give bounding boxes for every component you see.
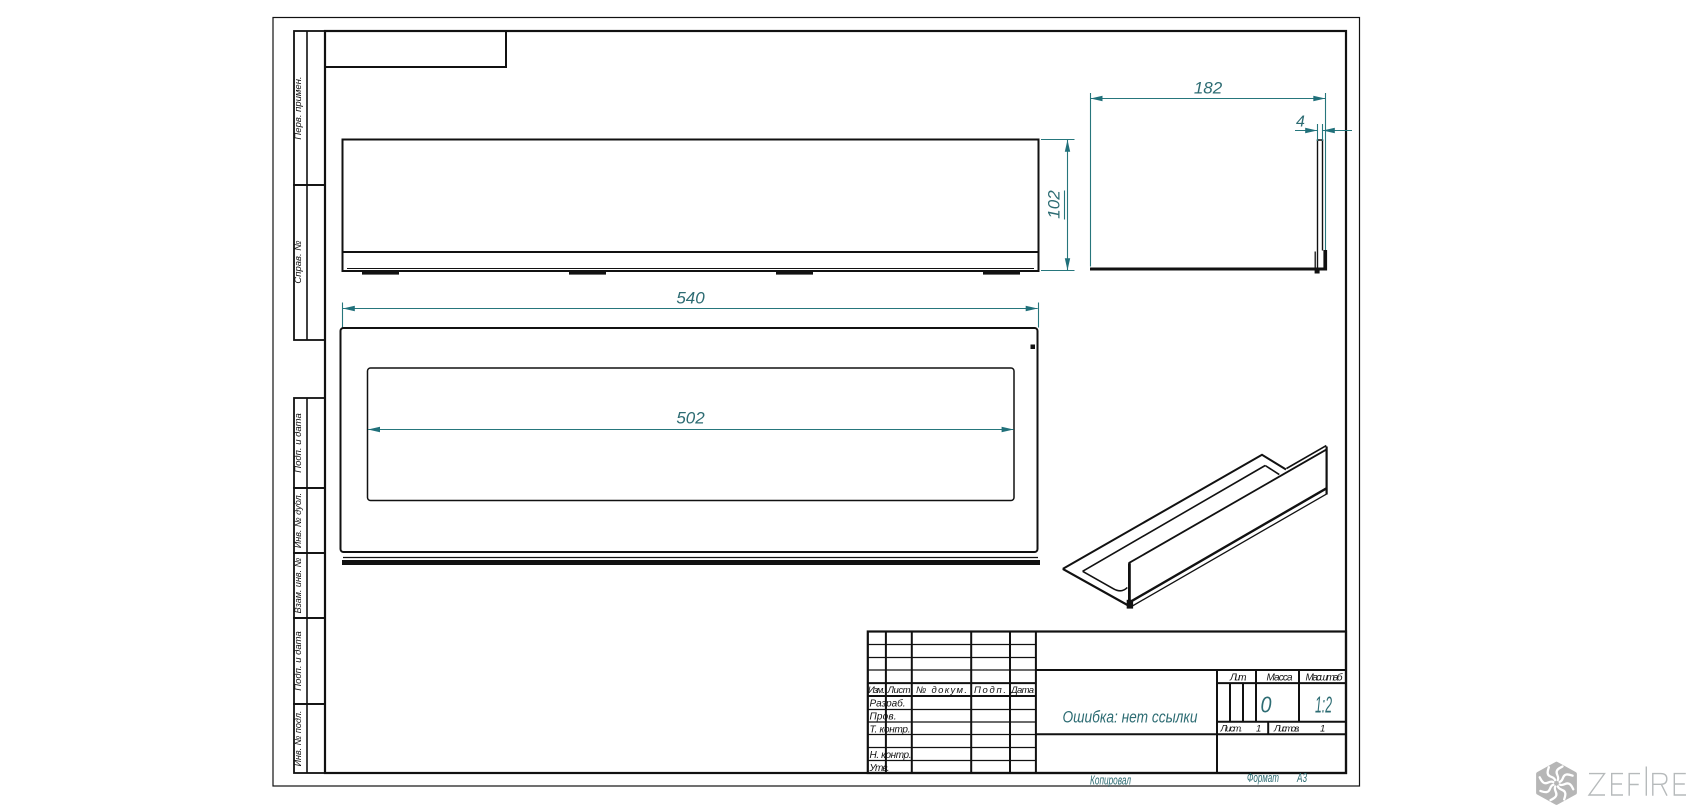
- svg-text:Листов.: Листов.: [1273, 724, 1300, 735]
- svg-text:Инв. № дубл.: Инв. № дубл.: [293, 493, 303, 548]
- svg-text:Масса: Масса: [1267, 672, 1293, 683]
- svg-text:Дата: Дата: [1010, 685, 1034, 696]
- svg-text:Лит.: Лит.: [1229, 672, 1247, 683]
- svg-text:Пров.: Пров.: [870, 711, 897, 722]
- svg-text:1: 1: [1256, 724, 1261, 735]
- svg-text:Справ. №: Справ. №: [293, 240, 304, 283]
- svg-text:Т. контр.: Т. контр.: [870, 724, 911, 735]
- svg-text:102: 102: [1045, 190, 1064, 219]
- svg-text:Перв. примен.: Перв. примен.: [293, 76, 304, 139]
- svg-text:А3: А3: [1296, 771, 1307, 785]
- svg-text:Лист: Лист: [887, 685, 911, 696]
- svg-text:Масштаб: Масштаб: [1306, 671, 1343, 683]
- svg-text:Н. контр.: Н. контр.: [870, 750, 912, 761]
- svg-text:Изм.: Изм.: [868, 685, 885, 696]
- svg-text:1:2: 1:2: [1315, 692, 1332, 718]
- svg-text:Инв. № подл.: Инв. № подл.: [293, 711, 303, 767]
- svg-text:Лист.: Лист.: [1220, 724, 1243, 735]
- svg-text:182: 182: [1194, 79, 1223, 98]
- svg-text:Копировал: Копировал: [1090, 773, 1131, 788]
- svg-text:Подп. и дата: Подп. и дата: [293, 413, 304, 472]
- svg-text:0: 0: [1261, 692, 1272, 718]
- svg-text:Утв.: Утв.: [869, 763, 890, 774]
- svg-text:502: 502: [676, 409, 705, 428]
- svg-text:Формат: Формат: [1247, 771, 1279, 785]
- svg-text:Ошибка: нет ссылки: Ошибка: нет ссылки: [1063, 708, 1198, 727]
- svg-text:Подп.: Подп.: [974, 685, 1006, 696]
- svg-text:Разраб.: Разраб.: [870, 698, 906, 710]
- svg-text:Взам. инв. №: Взам. инв. №: [293, 557, 303, 613]
- svg-text:№ докум.: № докум.: [916, 685, 967, 696]
- svg-text:Подп. и дата: Подп. и дата: [293, 631, 304, 690]
- svg-text:540: 540: [676, 289, 705, 308]
- svg-text:4: 4: [1296, 114, 1305, 131]
- svg-text:1: 1: [1320, 724, 1325, 735]
